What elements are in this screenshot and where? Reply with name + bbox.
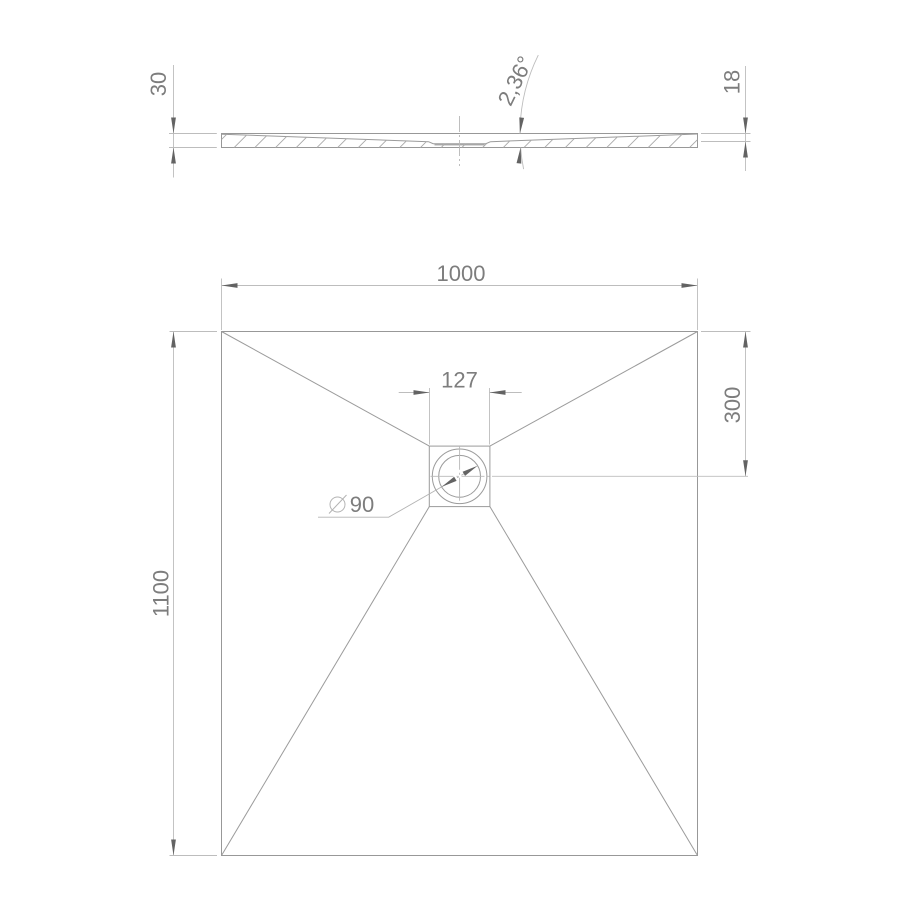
svg-text:2,36°: 2,36° (493, 52, 538, 109)
svg-text:30: 30 (146, 72, 171, 96)
svg-text:90: 90 (350, 492, 374, 517)
svg-text:1000: 1000 (437, 261, 486, 286)
svg-text:1100: 1100 (149, 570, 174, 617)
svg-text:127: 127 (441, 368, 478, 393)
svg-text:18: 18 (720, 70, 745, 94)
svg-text:300: 300 (720, 387, 745, 424)
